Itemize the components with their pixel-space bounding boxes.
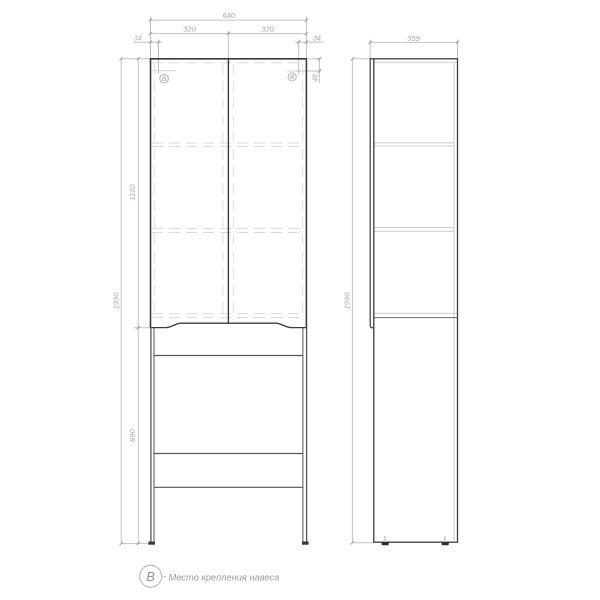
svg-text:890: 890 — [128, 428, 137, 441]
svg-text:В: В — [146, 569, 155, 584]
svg-text:320: 320 — [261, 25, 274, 34]
svg-text:34: 34 — [313, 35, 321, 42]
svg-text:640: 640 — [222, 11, 235, 20]
svg-text:В: В — [162, 76, 166, 83]
svg-text:1990: 1990 — [342, 292, 351, 310]
svg-text:34: 34 — [134, 35, 142, 42]
svg-text:1990: 1990 — [111, 292, 120, 310]
svg-text:320: 320 — [183, 25, 196, 34]
svg-text:359: 359 — [407, 34, 420, 43]
svg-text:В: В — [290, 74, 294, 81]
svg-text:Место крепления навеса: Место крепления навеса — [169, 572, 280, 582]
svg-text:48: 48 — [312, 74, 319, 82]
svg-text:1100: 1100 — [128, 184, 137, 201]
